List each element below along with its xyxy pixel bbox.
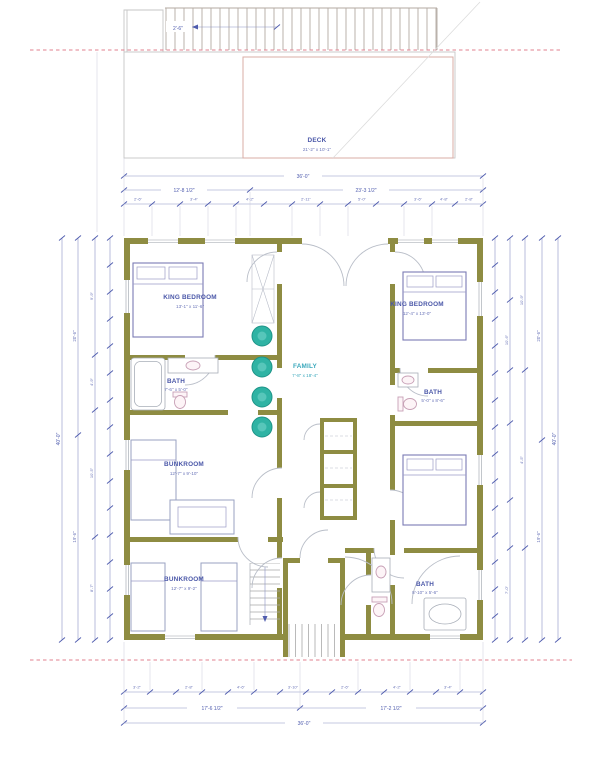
bath2-fixtures bbox=[398, 373, 418, 411]
bottom-seg-right-dim: 17'-2 1/2" bbox=[380, 706, 401, 712]
bunk-beds-2 bbox=[131, 563, 237, 631]
bottom-small-dim: 2'-6" bbox=[341, 685, 350, 690]
top-seg-left-dim: 12'-8 1/2" bbox=[173, 188, 194, 194]
left-dimension-chains: 40'-0" 20'-6" 19'-6" 9'-9" 4'-9" 10'-5" … bbox=[56, 236, 113, 643]
left-small-dim: 8'-7" bbox=[89, 583, 94, 592]
closet-shelving bbox=[325, 436, 352, 500]
family-dims: 7'-8" x 18'-4" bbox=[292, 373, 318, 378]
top-small-dim: 4'-2" bbox=[246, 197, 255, 202]
left-seg-a-dim: 20'-6" bbox=[72, 330, 77, 342]
right-dimension-chains: 10'-6" 7'-0" 10'-9" 4'-5" 20'-6" 19'-6" … bbox=[492, 236, 561, 643]
deck-depth-label: 2'-6" bbox=[173, 26, 183, 32]
bunk2-label: BUNKROOM bbox=[164, 576, 204, 583]
left-small-dim: 9'-9" bbox=[89, 291, 94, 300]
left-overall-dim: 40'-0" bbox=[56, 432, 62, 445]
top-seg-right-dim: 23'-3 1/2" bbox=[355, 188, 376, 194]
appliance-markers bbox=[252, 326, 272, 437]
deck-label: DECK bbox=[308, 137, 327, 144]
top-small-dim: 3'-4" bbox=[190, 197, 199, 202]
bottom-small-dim: 3'-2" bbox=[133, 685, 142, 690]
bed-lower-right bbox=[403, 455, 466, 525]
left-small-dim: 10'-5" bbox=[89, 467, 94, 478]
left-small-dim: 4'-9" bbox=[89, 377, 94, 386]
bottom-small-dim: 3'-10" bbox=[288, 685, 299, 690]
top-overall-dim: 36'-0" bbox=[297, 174, 310, 180]
top-small-dim: 2'-6" bbox=[134, 197, 143, 202]
bath3-label: BATH bbox=[416, 581, 434, 588]
bunk-beds-1 bbox=[131, 440, 234, 534]
right-small-dim: 10'-9" bbox=[519, 294, 524, 305]
bunk1-label: BUNKROOM bbox=[164, 461, 204, 468]
bottom-small-dim: 4'-6" bbox=[237, 685, 246, 690]
top-small-dim: 4'-8" bbox=[440, 197, 449, 202]
bath3-dims: 8'-10" x 5'-6" bbox=[412, 590, 438, 595]
left-seg-b-dim: 19'-6" bbox=[72, 531, 77, 543]
bath1-label: BATH bbox=[167, 378, 185, 385]
king1-label: KING BEDROOM bbox=[163, 294, 217, 301]
top-small-dim: 2'-11" bbox=[301, 197, 311, 202]
bath2-dims: 5'-0" x 8'-6" bbox=[421, 398, 445, 403]
right-small-dim: 7'-0" bbox=[504, 585, 509, 594]
right-overall-dim: 40'-0" bbox=[552, 432, 558, 445]
right-small-dim: 10'-6" bbox=[504, 334, 509, 345]
floor-plan-canvas: 2'-6" DECK 21'-2" x 10'-1" 36'-0" 12'-8 … bbox=[0, 0, 604, 768]
laundry-chase bbox=[252, 255, 274, 323]
family-label: FAMILY bbox=[293, 363, 318, 370]
king2-label: KING BEDROOM bbox=[390, 301, 444, 308]
right-seg-a-dim: 20'-6" bbox=[536, 330, 541, 342]
right-seg-b-dim: 19'-6" bbox=[536, 531, 541, 543]
bath2-label: BATH bbox=[424, 389, 442, 396]
bottom-overall-dim: 36'-0" bbox=[298, 721, 311, 727]
king2-dims: 12'-4" x 13'-0" bbox=[403, 311, 432, 316]
top-small-dim: 3'-6" bbox=[414, 197, 423, 202]
bunk2-dims: 12'-7" x 9'-2" bbox=[171, 586, 197, 591]
king1-dims: 13'-1" x 11'-6" bbox=[176, 304, 204, 309]
bottom-small-dim: 3'-4" bbox=[444, 685, 453, 690]
bottom-seg-left-dim: 17'-6 1/2" bbox=[201, 706, 222, 712]
top-small-dim: 5'-0" bbox=[358, 197, 367, 202]
bunk1-dims: 12'-7" x 9'-10" bbox=[170, 471, 199, 476]
bottom-small-dim: 4'-2" bbox=[393, 685, 402, 690]
deck-dims: 21'-2" x 10'-1" bbox=[303, 147, 332, 152]
top-small-dim: 2'-8" bbox=[465, 197, 474, 202]
top-dimension-chains: 36'-0" 12'-8 1/2" 23'-3 1/2" 2'-6" 3'-4"… bbox=[121, 158, 486, 236]
stairs bbox=[250, 563, 340, 657]
bath1-dims: 7'-6" x 5'-0" bbox=[164, 387, 188, 392]
right-small-dim: 4'-5" bbox=[519, 455, 524, 464]
bottom-small-dim: 2'-8" bbox=[185, 685, 194, 690]
floor-plan-page: 2'-6" DECK 21'-2" x 10'-1" 36'-0" 12'-8 … bbox=[0, 0, 604, 768]
